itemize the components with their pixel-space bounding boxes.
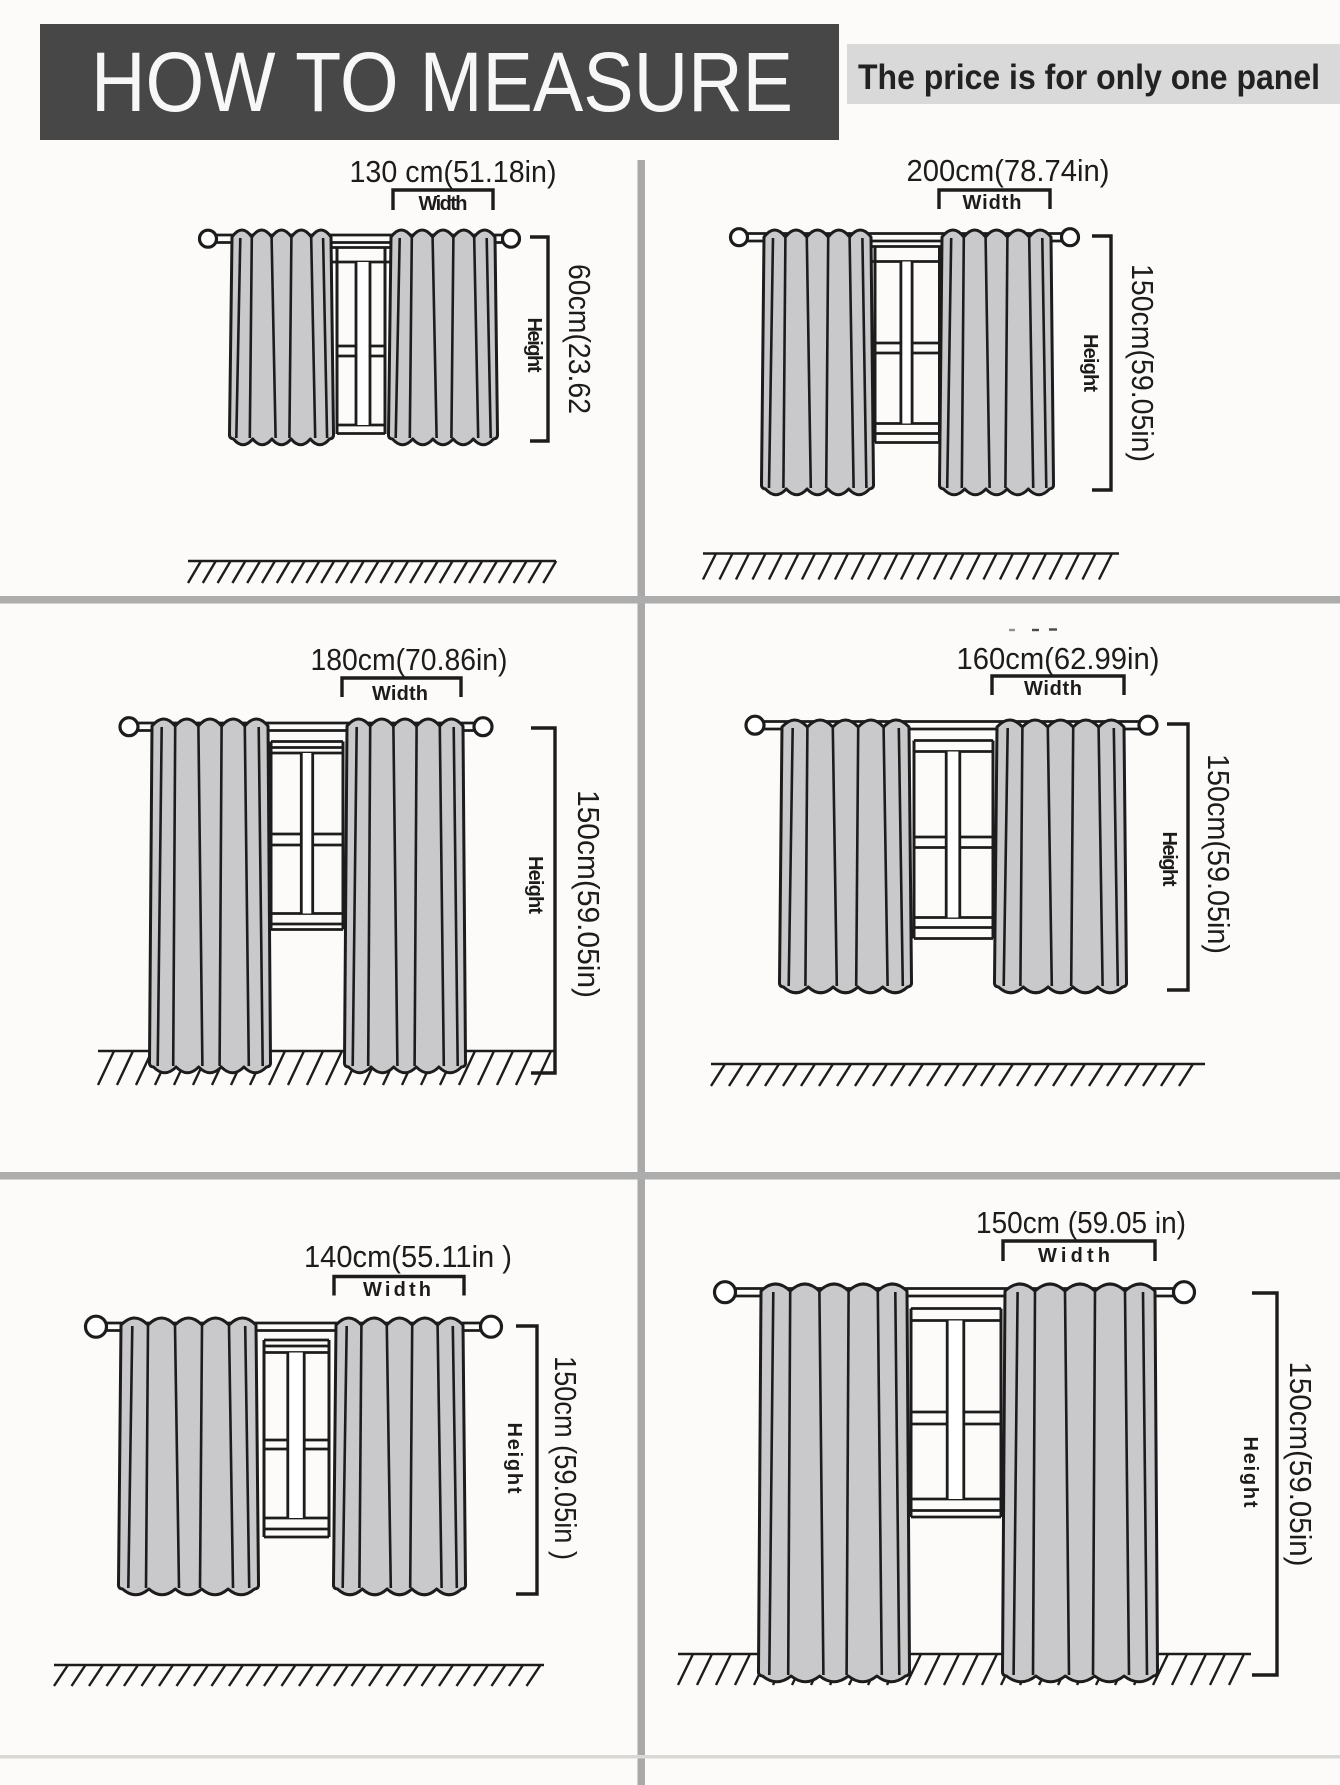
svg-text:150cm(59.05in): 150cm(59.05in) — [1283, 1362, 1318, 1567]
svg-text:Width: Width — [372, 683, 428, 705]
svg-text:Height: Height — [524, 856, 546, 914]
svg-text:HOW TO MEASURE: HOW TO MEASURE — [91, 35, 793, 129]
svg-text:Height: Height — [523, 318, 545, 373]
svg-text:150cm(59.05in): 150cm(59.05in) — [571, 790, 606, 998]
svg-text:150cm (59.05 in): 150cm (59.05 in) — [976, 1205, 1186, 1240]
svg-text:Width: Width — [1024, 678, 1082, 700]
svg-text:150cm(59.05in): 150cm(59.05in) — [1201, 754, 1236, 954]
svg-text:60cm(23.62: 60cm(23.62 — [562, 264, 597, 414]
svg-text:Height: Height — [1239, 1437, 1261, 1508]
svg-text:Height: Height — [503, 1423, 525, 1494]
svg-text:The price is for only one pane: The price is for only one panel — [858, 58, 1320, 97]
svg-text:Height: Height — [1079, 334, 1101, 392]
svg-text:Width: Width — [963, 192, 1022, 214]
svg-text:200cm(78.74in): 200cm(78.74in) — [907, 153, 1110, 188]
svg-text:160cm(62.99in): 160cm(62.99in) — [957, 641, 1160, 676]
svg-text:140cm(55.11in ): 140cm(55.11in ) — [304, 1239, 512, 1274]
svg-text:180cm(70.86in): 180cm(70.86in) — [311, 642, 508, 677]
svg-text:150cm(59.05in): 150cm(59.05in) — [1125, 264, 1160, 462]
svg-text:130 cm(51.18in): 130 cm(51.18in) — [350, 154, 557, 189]
svg-text:Width: Width — [1038, 1245, 1110, 1267]
svg-text:Height: Height — [1158, 832, 1180, 887]
svg-text:Width: Width — [363, 1279, 431, 1301]
svg-text:Width: Width — [419, 193, 468, 215]
svg-text:150cm (59.05in ): 150cm (59.05in ) — [548, 1356, 583, 1560]
